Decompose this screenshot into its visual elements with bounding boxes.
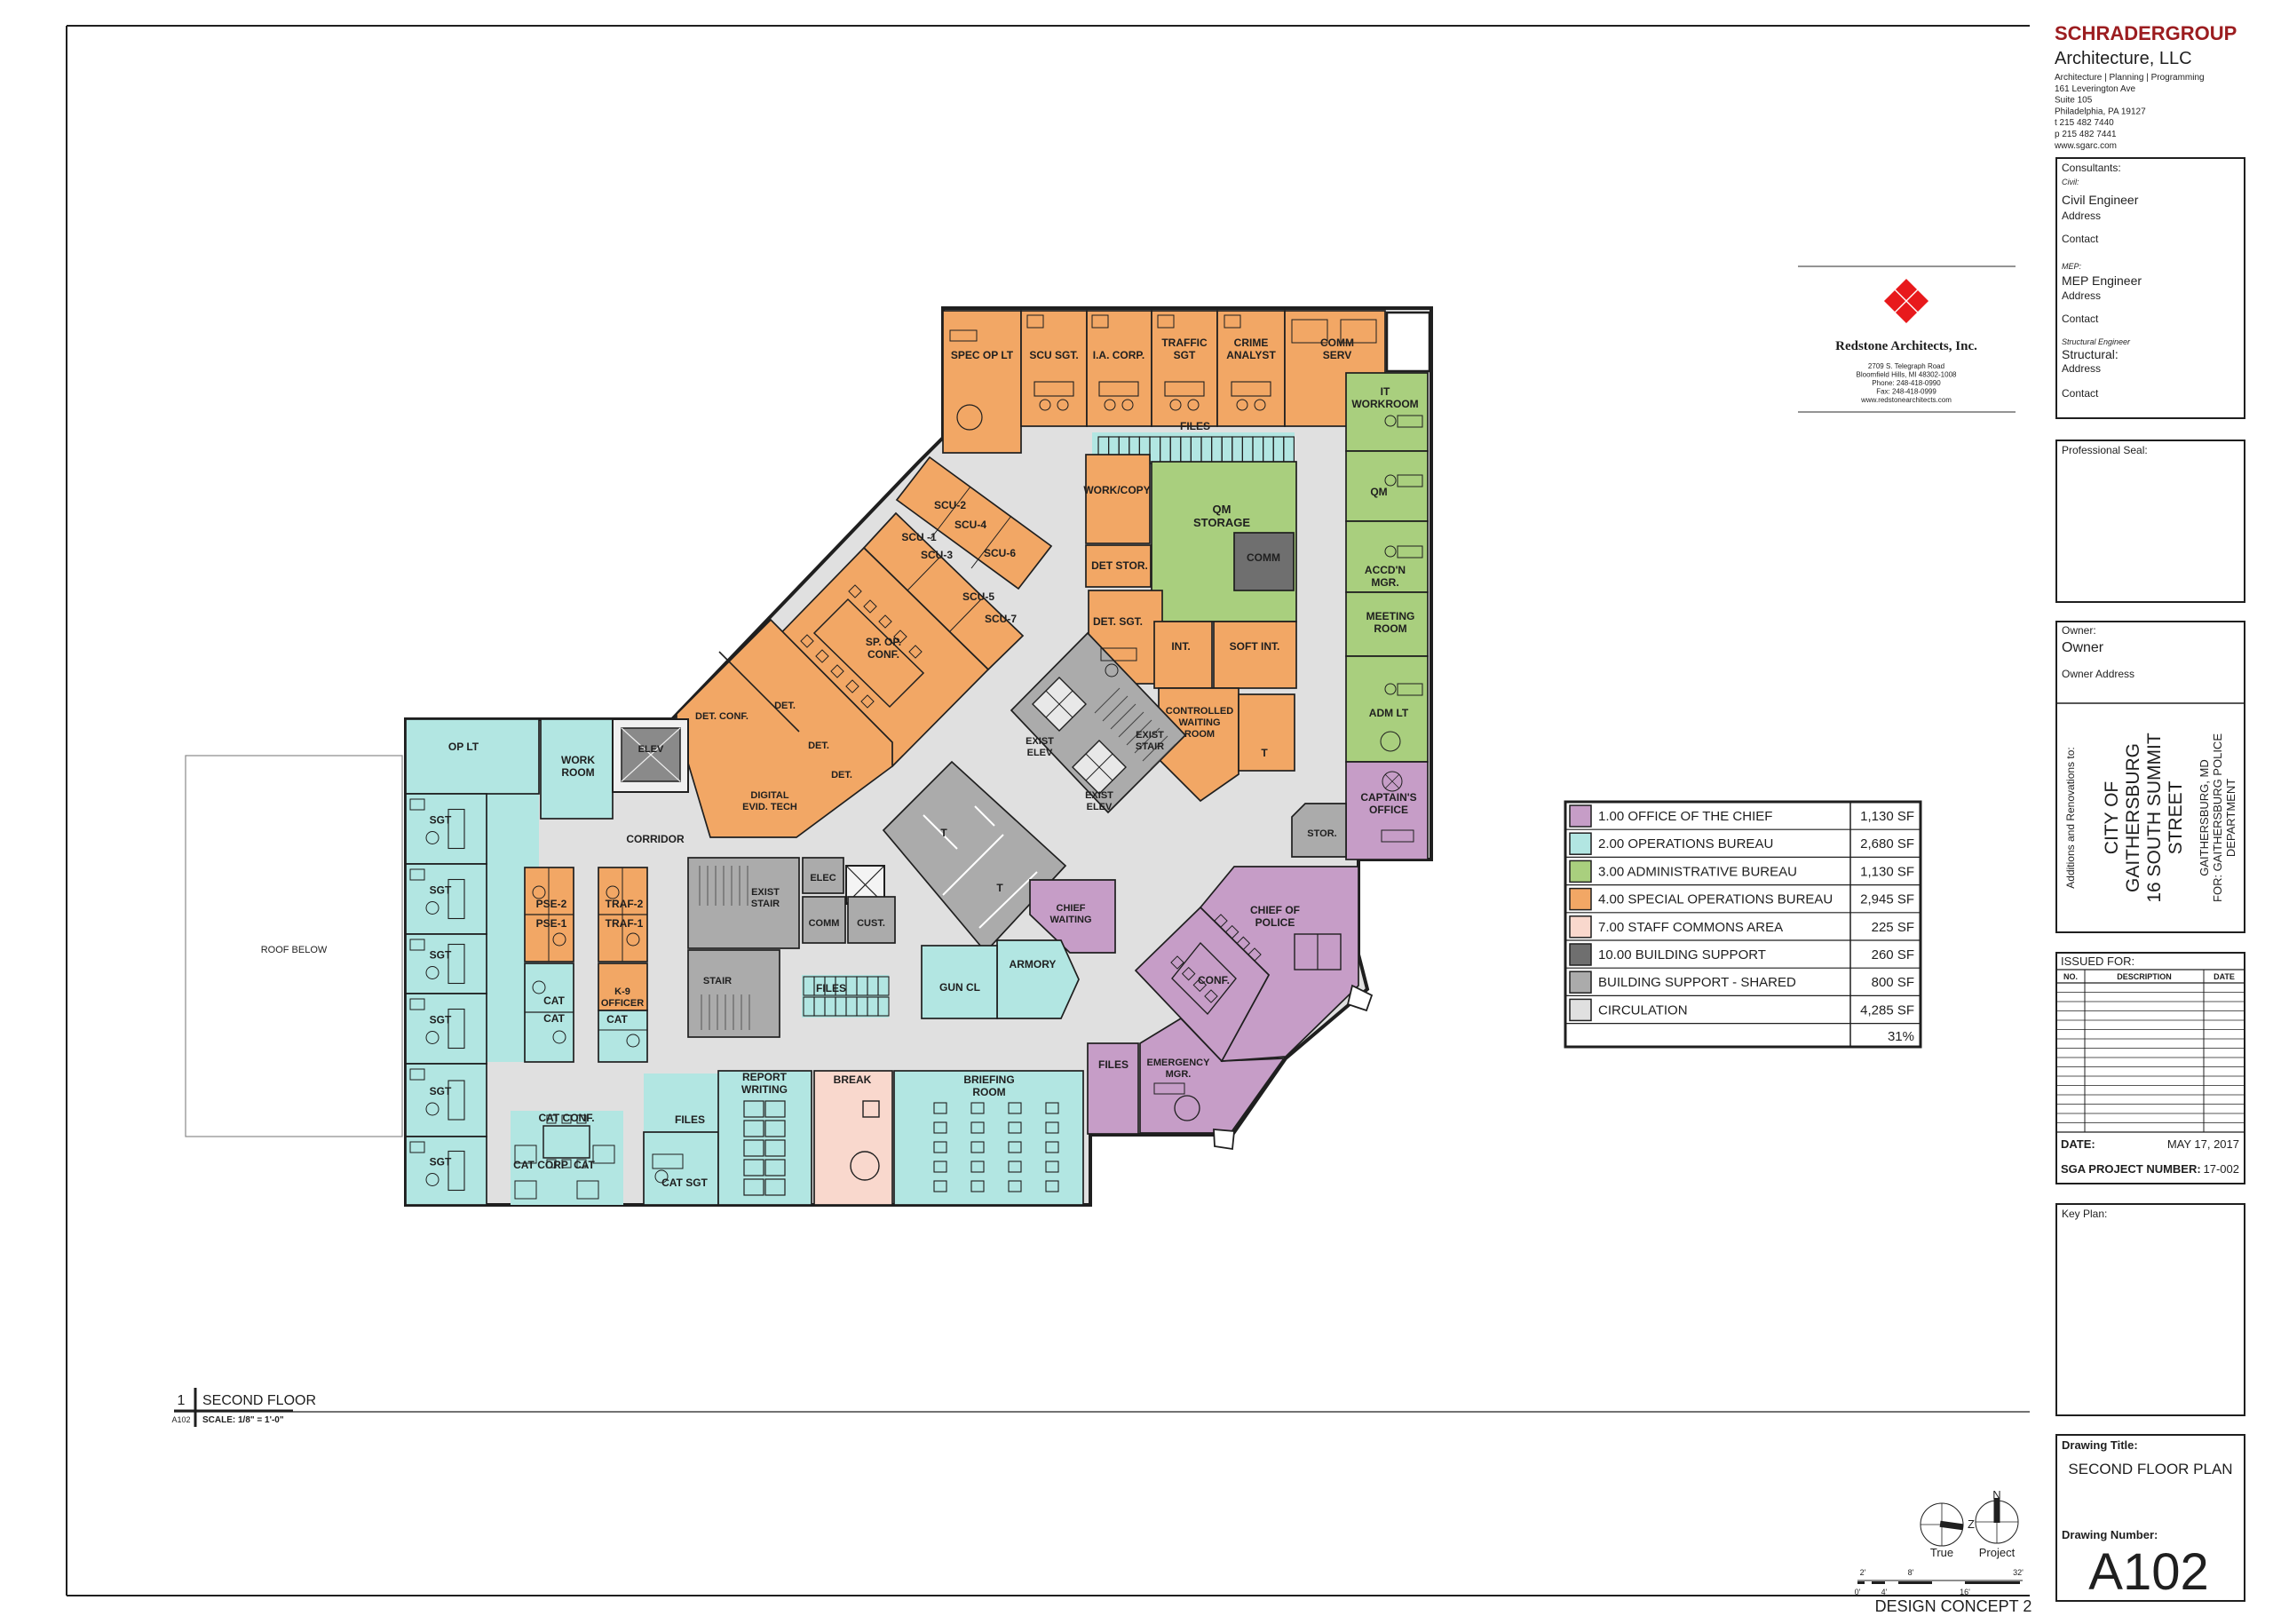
svg-text:1,130 SF: 1,130 SF [1860,809,1914,824]
svg-text:ISSUED FOR:: ISSUED FOR: [2061,955,2134,968]
svg-text:EXIST: EXIST [1136,730,1164,741]
svg-text:Z: Z [1968,1517,1975,1531]
svg-text:ROOM: ROOM [972,1086,1005,1098]
svg-text:ELEV: ELEV [638,744,664,755]
svg-text:4,285 SF: 4,285 SF [1860,1002,1914,1018]
svg-text:Professional Seal:: Professional Seal: [2062,444,2148,456]
svg-text:DET.: DET. [774,701,796,711]
svg-text:FOR: GAITHERSBURG POLICE: FOR: GAITHERSBURG POLICE [2211,733,2224,902]
svg-text:2': 2' [1860,1568,1866,1577]
svg-text:ELEV: ELEV [1087,802,1113,812]
svg-text:STAIR: STAIR [751,899,780,909]
svg-text:DET. CONF.: DET. CONF. [695,711,748,722]
svg-text:REPORT: REPORT [742,1071,788,1083]
svg-text:DESIGN CONCEPT 2: DESIGN CONCEPT 2 [1875,1597,2032,1615]
svg-text:Contact: Contact [2062,233,2099,245]
svg-text:CAT: CAT [543,1012,565,1025]
svg-text:MEP:: MEP: [2062,262,2082,271]
svg-text:Structural Engineer: Structural Engineer [2062,337,2131,346]
svg-text:8': 8' [1908,1568,1914,1577]
svg-text:CONF.: CONF. [867,648,899,661]
svg-text:Owner Address: Owner Address [2062,668,2134,680]
svg-text:161 Leverington Ave: 161 Leverington Ave [2055,84,2135,94]
svg-text:QM: QM [1370,486,1387,498]
svg-text:CONTROLLED: CONTROLLED [1166,706,1233,717]
svg-text:CONF.: CONF. [1198,974,1230,986]
svg-text:SERV: SERV [1323,349,1351,361]
svg-text:TRAF-1: TRAF-1 [606,917,644,930]
svg-text:Owner:: Owner: [2062,624,2096,637]
svg-text:WRITING: WRITING [741,1083,788,1096]
svg-text:16': 16' [1960,1588,1970,1596]
svg-text:CAT: CAT [606,1013,628,1026]
svg-text:ELEV: ELEV [1027,748,1053,758]
svg-text:OFFICE: OFFICE [1369,804,1408,816]
svg-text:Contact: Contact [2062,313,2099,325]
svg-text:EXIST: EXIST [751,887,780,898]
svg-text:MEP Engineer: MEP Engineer [2062,273,2142,288]
svg-text:T: T [996,882,1003,894]
svg-text:BRIEFING: BRIEFING [963,1073,1014,1086]
svg-text:CAPTAIN'S: CAPTAIN'S [1360,791,1416,804]
svg-text:EXIST: EXIST [1026,736,1054,747]
svg-text:Owner: Owner [2062,640,2104,655]
svg-text:Address: Address [2062,362,2101,375]
svg-text:PSE-2: PSE-2 [536,898,567,910]
svg-text:31%: 31% [1888,1029,1914,1044]
svg-text:2,680 SF: 2,680 SF [1860,836,1914,852]
svg-text:SGT: SGT [1174,349,1196,361]
svg-text:PSE-1: PSE-1 [536,917,567,930]
svg-text:CITY OF: CITY OF [2102,781,2122,854]
svg-text:SCU-2: SCU-2 [934,499,966,511]
svg-text:True: True [1930,1546,1953,1559]
svg-text:CRIME: CRIME [1234,337,1269,349]
svg-text:Structural:: Structural: [2062,347,2119,361]
svg-text:MGR.: MGR. [1166,1069,1192,1080]
svg-text:www.sgarc.com: www.sgarc.com [2054,141,2117,151]
svg-text:STREET: STREET [2166,780,2186,854]
svg-text:CHIEF: CHIEF [1057,903,1086,914]
svg-text:FILES: FILES [816,982,846,994]
svg-text:10.00 BUILDING SUPPORT: 10.00 BUILDING SUPPORT [1598,947,1766,963]
svg-text:STAIR: STAIR [1136,741,1164,752]
svg-text:TRAFFIC: TRAFFIC [1161,337,1208,349]
svg-text:STAIR: STAIR [703,976,732,986]
svg-text:2.00 OPERATIONS BUREAU: 2.00 OPERATIONS BUREAU [1598,836,1773,852]
svg-text:Address: Address [2062,289,2101,302]
svg-text:Fax: 248-418-0999: Fax: 248-418-0999 [1876,388,1936,396]
svg-text:Civil Engineer: Civil Engineer [2062,193,2139,207]
svg-text:FILES: FILES [1098,1058,1129,1071]
svg-text:WAITING: WAITING [1049,915,1091,925]
svg-text:p 215 482 7441: p 215 482 7441 [2055,130,2117,139]
svg-text:QM: QM [1213,503,1232,516]
svg-text:Project: Project [1979,1546,2016,1559]
svg-text:DET. SGT.: DET. SGT. [1093,615,1143,628]
svg-text:Key Plan:: Key Plan: [2062,1208,2107,1220]
svg-text:1,130 SF: 1,130 SF [1860,864,1914,879]
svg-text:DIGITAL: DIGITAL [750,790,788,801]
svg-text:BUILDING SUPPORT - SHARED: BUILDING SUPPORT - SHARED [1598,975,1796,990]
svg-text:INT.: INT. [1171,640,1190,653]
svg-text:ELEC: ELEC [810,873,836,883]
svg-text:0': 0' [1855,1588,1861,1596]
svg-text:www.redstonearchitects.com: www.redstonearchitects.com [1860,396,1952,404]
svg-text:CUST.: CUST. [857,918,885,929]
svg-text:IT: IT [1381,385,1390,398]
svg-text:WAITING: WAITING [1178,717,1220,728]
svg-text:T: T [940,827,947,839]
svg-text:DET.: DET. [831,770,852,780]
svg-text:GAITHERSBURG: GAITHERSBURG [2123,743,2143,892]
svg-text:ANALYST: ANALYST [1226,349,1276,361]
svg-text:ROOM: ROOM [1184,729,1215,740]
svg-text:7.00 STAFF COMMONS AREA: 7.00 STAFF COMMONS AREA [1598,920,1783,935]
svg-text:CHIEF OF: CHIEF OF [1250,904,1300,916]
svg-text:17-002: 17-002 [2204,1162,2239,1176]
svg-text:EMERGENCY: EMERGENCY [1147,1058,1211,1068]
svg-text:SCU SGT.: SCU SGT. [1029,349,1078,361]
svg-text:ROOM: ROOM [1374,622,1406,635]
svg-text:SCU-5: SCU-5 [962,590,994,603]
svg-text:Consultants:: Consultants: [2062,162,2121,174]
svg-text:SCU-4: SCU-4 [954,519,986,531]
svg-text:SECOND FLOOR: SECOND FLOOR [202,1393,316,1408]
svg-text:DEPARTMENT: DEPARTMENT [2224,779,2237,857]
svg-text:ARMORY: ARMORY [1010,958,1057,970]
svg-text:I.A. CORP.: I.A. CORP. [1093,349,1144,361]
svg-text:Philadelphia, PA 19127: Philadelphia, PA 19127 [2055,107,2146,116]
svg-text:Civil:: Civil: [2062,178,2079,186]
svg-text:STOR.: STOR. [1307,828,1336,839]
svg-text:WORK: WORK [561,754,595,766]
svg-text:DATE: DATE [2214,972,2235,981]
svg-text:FILES: FILES [1180,420,1210,432]
svg-text:Drawing Number:: Drawing Number: [2062,1528,2158,1541]
svg-text:WORK/COPY: WORK/COPY [1083,484,1150,496]
svg-text:800 SF: 800 SF [1872,975,1914,990]
svg-text:SCU-7: SCU-7 [985,613,1017,625]
svg-text:CAT: CAT [543,994,565,1007]
svg-text:SCU-6: SCU-6 [984,547,1016,559]
svg-text:CIRCULATION: CIRCULATION [1598,1002,1688,1018]
svg-text:Architecture, LLC: Architecture, LLC [2055,49,2192,68]
svg-text:4': 4' [1881,1588,1888,1596]
svg-text:Drawing Title:: Drawing Title: [2062,1438,2138,1452]
svg-text:Phone: 248-418-0990: Phone: 248-418-0990 [1872,379,1941,387]
svg-text:OP LT: OP LT [448,741,479,753]
svg-text:WORKROOM: WORKROOM [1351,398,1418,410]
svg-text:COMM: COMM [809,918,840,929]
svg-text:DESCRIPTION: DESCRIPTION [2117,972,2172,981]
svg-text:t 215 482 7440: t 215 482 7440 [2055,118,2114,128]
svg-text:Contact: Contact [2062,387,2099,400]
svg-text:DET STOR.: DET STOR. [1091,559,1148,572]
svg-text:COMM: COMM [1247,551,1280,564]
svg-text:SPEC OP LT: SPEC OP LT [951,349,1014,361]
svg-text:4.00 SPECIAL OPERATIONS BUREAU: 4.00 SPECIAL OPERATIONS BUREAU [1598,892,1833,907]
svg-text:1.00 OFFICE OF THE CHIEF: 1.00 OFFICE OF THE CHIEF [1598,809,1772,824]
svg-text:STORAGE: STORAGE [1193,516,1250,529]
svg-text:Bloomfield Hills, MI 48302-100: Bloomfield Hills, MI 48302-1008 [1857,371,1957,379]
svg-text:Address: Address [2062,210,2101,222]
svg-text:CAT SGT: CAT SGT [661,1176,708,1189]
svg-text:NO.: NO. [2063,972,2078,981]
svg-text:MGR.: MGR. [1371,576,1398,589]
svg-text:SCHRADERGROUP: SCHRADERGROUP [2055,22,2237,44]
svg-text:MAY 17, 2017: MAY 17, 2017 [2167,1137,2239,1151]
svg-text:2709 S. Telegraph Road: 2709 S. Telegraph Road [1868,362,1944,370]
svg-text:ACCD'N: ACCD'N [1365,564,1406,576]
svg-text:EXIST: EXIST [1085,790,1113,801]
svg-text:GUN CL: GUN CL [939,981,980,994]
svg-text:A102: A102 [171,1415,190,1424]
svg-text:260 SF: 260 SF [1872,947,1914,963]
svg-text:Additions and Renovations to:: Additions and Renovations to: [2064,747,2077,888]
svg-text:ADM LT: ADM LT [1369,707,1409,719]
svg-text:Redstone Architects, Inc.: Redstone Architects, Inc. [1835,339,1977,353]
svg-text:2,945 SF: 2,945 SF [1860,892,1914,907]
svg-text:FILES: FILES [675,1113,705,1126]
svg-text:SGA PROJECT NUMBER:: SGA PROJECT NUMBER: [2061,1162,2201,1176]
svg-text:GAITHERSBURG, MD: GAITHERSBURG, MD [2198,759,2211,875]
svg-text:K-9: K-9 [614,986,630,997]
svg-text:OFFICER: OFFICER [601,998,644,1009]
svg-text:CAT CORP: CAT CORP [513,1159,568,1171]
svg-text:DET.: DET. [808,741,829,751]
svg-text:SCALE: 1/8" = 1'-0": SCALE: 1/8" = 1'-0" [202,1415,284,1425]
svg-text:Suite 105: Suite 105 [2055,96,2093,106]
svg-text:TRAF-2: TRAF-2 [606,898,644,910]
svg-text:SOFT INT.: SOFT INT. [1230,640,1280,653]
svg-text:ROOF BELOW: ROOF BELOW [261,945,328,955]
svg-text:T: T [1261,747,1268,759]
svg-text:225 SF: 225 SF [1872,920,1914,935]
svg-text:N: N [1992,1488,2000,1501]
svg-text:EVID. TECH: EVID. TECH [742,802,797,812]
svg-text:ROOM: ROOM [561,766,594,779]
svg-text:16 SOUTH SUMMIT: 16 SOUTH SUMMIT [2144,733,2165,903]
svg-text:DATE:: DATE: [2061,1137,2095,1151]
svg-text:Architecture | Planning |: Architecture | Planning | Programming [2055,73,2205,83]
svg-text:CORRIDOR: CORRIDOR [626,833,685,845]
svg-text:1: 1 [178,1393,186,1408]
svg-text:32': 32' [2013,1568,2024,1577]
svg-text:BREAK: BREAK [834,1073,872,1086]
svg-text:POLICE: POLICE [1255,916,1295,929]
svg-text:SECOND FLOOR PLAN: SECOND FLOOR PLAN [2068,1461,2232,1477]
svg-text:MEETING: MEETING [1366,610,1415,622]
svg-text:SCU-3: SCU-3 [921,549,953,561]
svg-text:A102: A102 [2088,1543,2208,1601]
svg-text:3.00 ADMINISTRATIVE BUREAU: 3.00 ADMINISTRATIVE BUREAU [1598,864,1797,879]
